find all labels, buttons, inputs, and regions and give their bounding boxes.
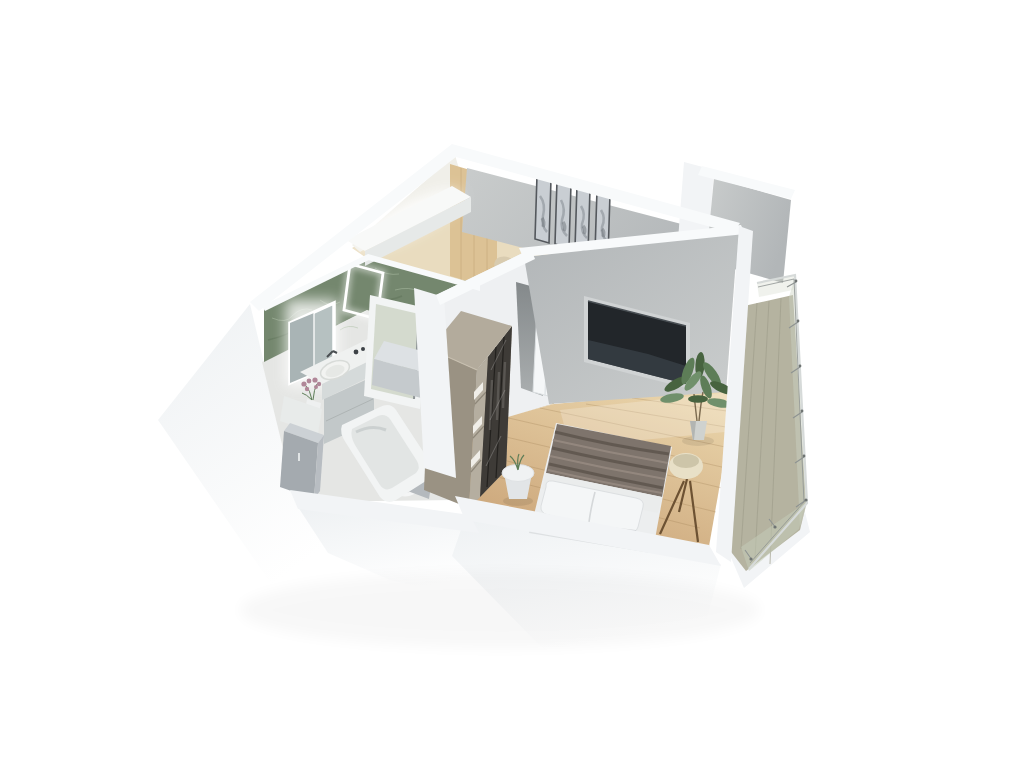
soap-bottle-2 bbox=[361, 347, 365, 351]
apartment-3d-floorplan bbox=[0, 0, 1024, 768]
floorplan-canvas bbox=[0, 0, 1024, 768]
tall-cabinet-front bbox=[280, 431, 318, 499]
soap-bottle bbox=[354, 350, 359, 355]
ground-shadow bbox=[240, 572, 760, 648]
lamp-shade-opening bbox=[673, 454, 699, 468]
